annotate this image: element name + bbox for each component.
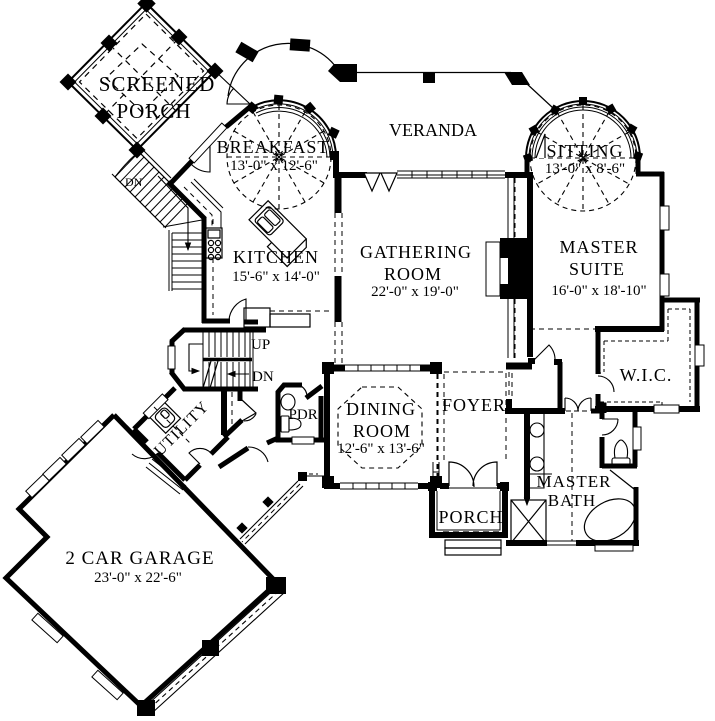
svg-text:W.I.C.: W.I.C. xyxy=(620,365,673,385)
svg-text:SITTING: SITTING xyxy=(547,141,624,161)
svg-text:2 CAR GARAGE: 2 CAR GARAGE xyxy=(65,548,214,569)
svg-text:15'-6" x 14'-0": 15'-6" x 14'-0" xyxy=(232,269,320,285)
svg-text:PORCH: PORCH xyxy=(116,99,191,123)
svg-text:GATHERING: GATHERING xyxy=(360,242,472,262)
svg-text:13'-0" x 12'-6": 13'-0" x 12'-6" xyxy=(230,158,318,174)
svg-text:FOYER: FOYER xyxy=(442,395,506,415)
svg-text:PORCH: PORCH xyxy=(438,507,503,527)
svg-text:BREAKFAST: BREAKFAST xyxy=(217,137,330,157)
svg-text:KITCHEN: KITCHEN xyxy=(233,247,319,267)
svg-text:16'-0" x 18'-10": 16'-0" x 18'-10" xyxy=(551,283,646,299)
svg-text:MASTER: MASTER xyxy=(559,237,638,257)
svg-text:SCREENED: SCREENED xyxy=(99,72,216,96)
svg-text:ROOM: ROOM xyxy=(384,264,442,284)
svg-text:12'-6" x 13'-6": 12'-6" x 13'-6" xyxy=(337,441,425,457)
svg-text:DN: DN xyxy=(252,369,274,385)
svg-text:PDR.: PDR. xyxy=(289,407,322,423)
svg-text:13'-0" x 8'-6": 13'-0" x 8'-6" xyxy=(545,161,625,177)
svg-text:VERANDA: VERANDA xyxy=(389,120,477,140)
svg-text:22'-0" x 19'-0": 22'-0" x 19'-0" xyxy=(371,284,459,300)
svg-text:UP: UP xyxy=(251,337,270,353)
svg-text:23'-0" x 22'-6": 23'-0" x 22'-6" xyxy=(94,570,182,586)
svg-text:ROOM: ROOM xyxy=(353,421,411,441)
svg-text:DINING: DINING xyxy=(346,399,416,419)
svg-text:SUITE: SUITE xyxy=(569,259,625,279)
svg-text:MASTER: MASTER xyxy=(537,472,612,491)
svg-text:BATH: BATH xyxy=(548,491,596,510)
